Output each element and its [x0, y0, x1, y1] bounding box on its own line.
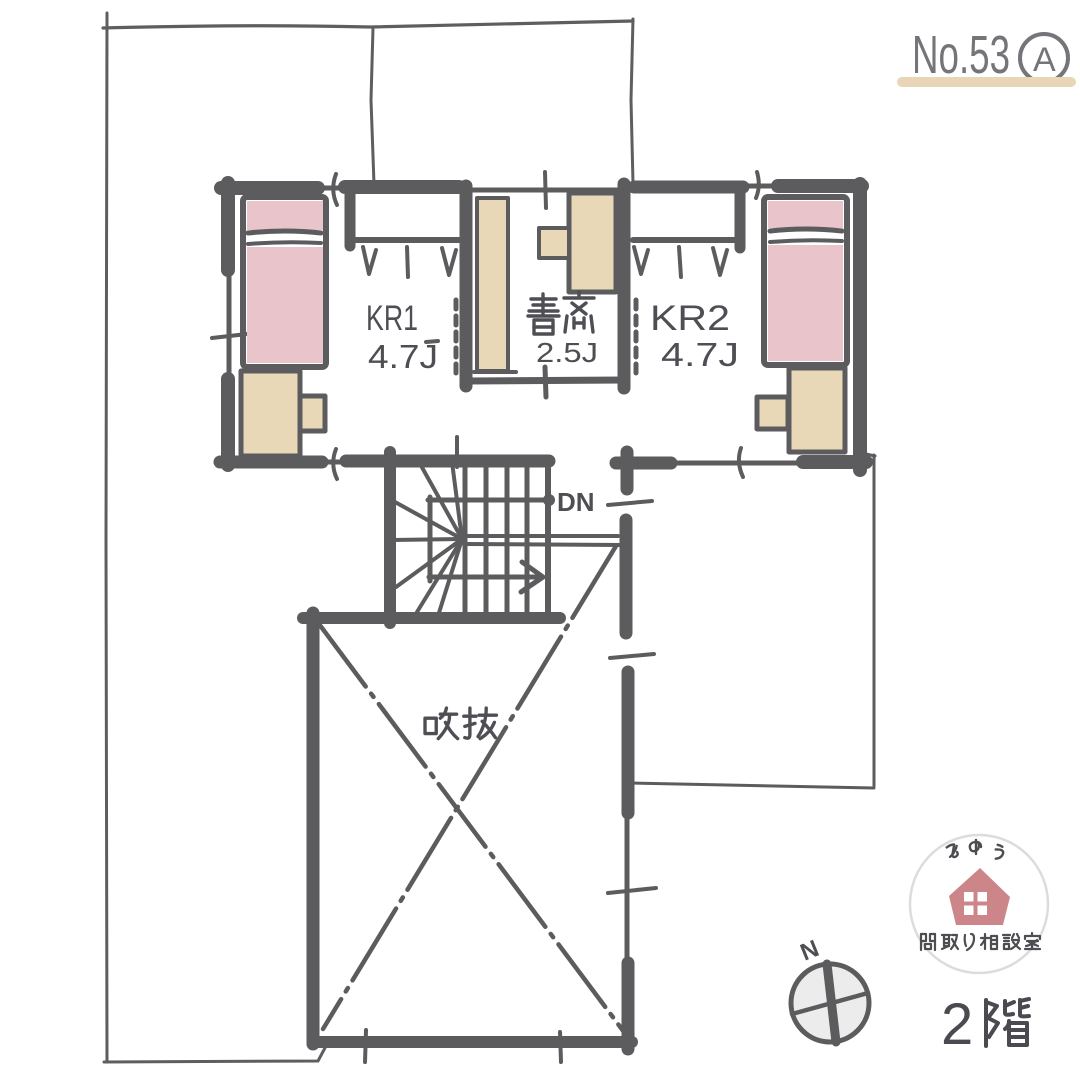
svg-text:2.5J: 2.5J — [536, 337, 598, 368]
svg-text:2: 2 — [941, 992, 973, 1057]
svg-text:KR2: KR2 — [650, 299, 730, 338]
svg-text:No.53: No.53 — [912, 25, 1010, 85]
svg-text:KR1: KR1 — [366, 299, 418, 338]
svg-text:A: A — [1033, 41, 1056, 79]
svg-text:4.7J: 4.7J — [368, 338, 438, 375]
svg-text:DN: DN — [557, 487, 595, 517]
svg-text:4.7J: 4.7J — [661, 336, 739, 373]
